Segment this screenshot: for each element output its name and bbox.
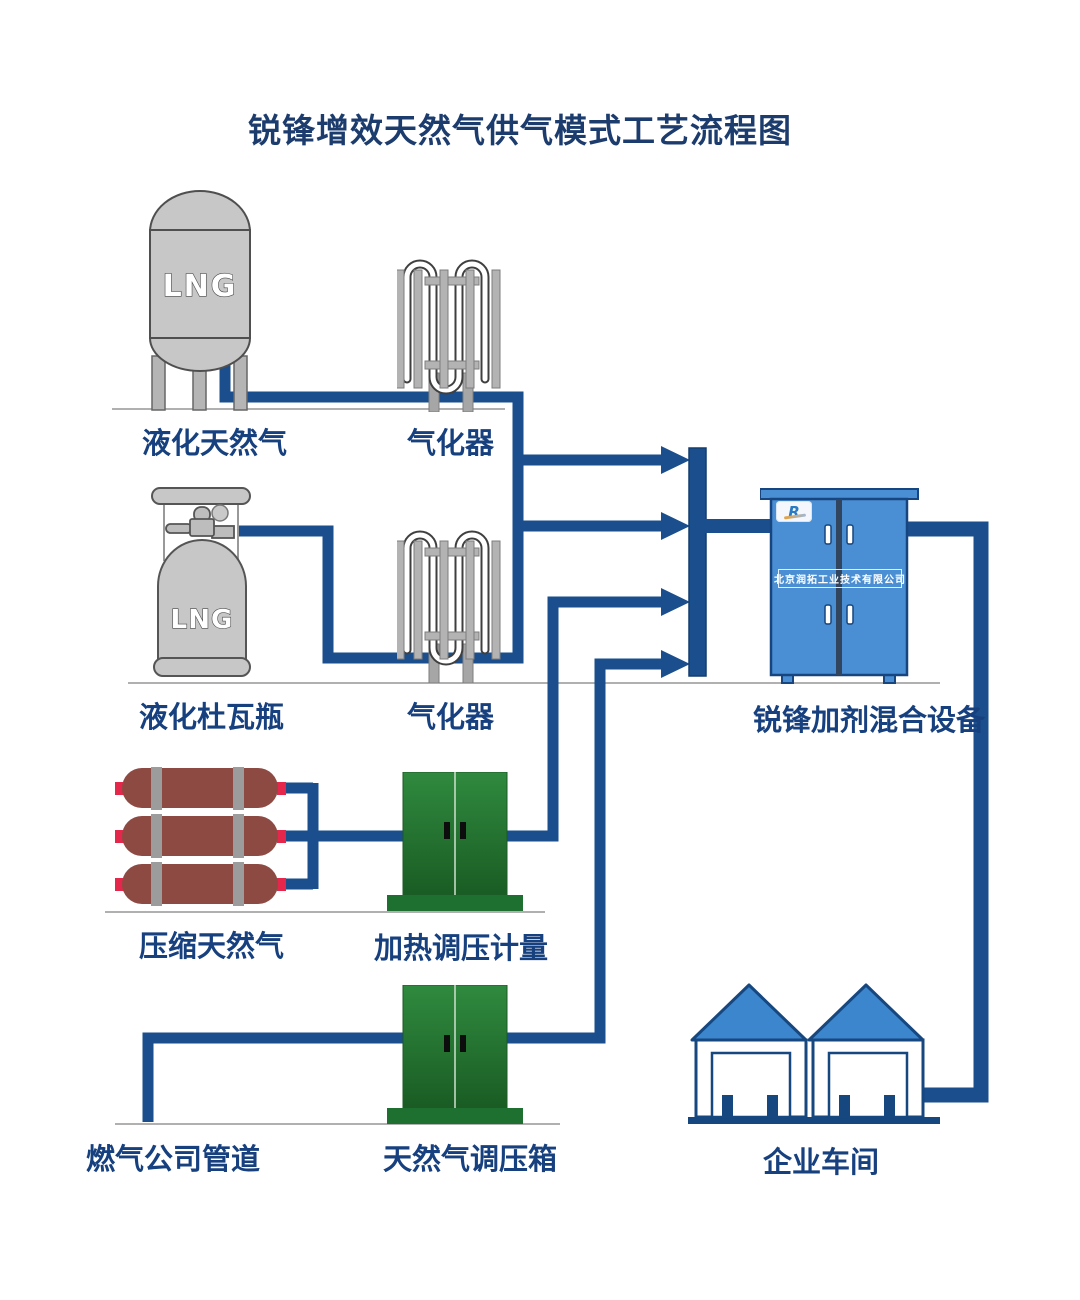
label-vaporizer-top: 气化器 [407, 420, 494, 462]
label-lng-tank: 液化天然气 [142, 420, 287, 462]
regulator-cabinet-base [387, 1108, 523, 1124]
label-regulator: 天然气调压箱 [383, 1136, 557, 1178]
manifold-bar [689, 448, 706, 676]
mixer-logo: R [776, 501, 812, 522]
manifold-arrowheads [661, 446, 690, 678]
heater-cabinet [385, 772, 525, 912]
dewar-gauge [212, 505, 228, 521]
workshop-building-2 [809, 985, 923, 1117]
dewar-rim [152, 488, 250, 504]
dewar-text: LNG [171, 605, 234, 635]
dewar-bottle: LNG [150, 486, 255, 686]
mixer-company-name: 北京润拓工业技术有限公司 [778, 569, 902, 588]
lng-tank-text: LNG [163, 269, 238, 304]
mixer-cap [760, 489, 918, 499]
regulator-cabinet [385, 985, 525, 1125]
dewar-base [154, 658, 250, 676]
label-heater: 加热调压计量 [374, 925, 548, 967]
label-vaporizer-mid: 气化器 [407, 694, 494, 736]
heater-cabinet-base [387, 895, 523, 911]
label-dewar: 液化杜瓦瓶 [139, 694, 284, 736]
workshop-buildings [688, 983, 946, 1129]
dewar-body [158, 540, 246, 664]
lng-tank: LNG [140, 184, 260, 412]
label-cng: 压缩天然气 [139, 923, 284, 965]
cng-cylinders [115, 767, 290, 909]
label-mixer: 锐锋加剂混合设备 [753, 697, 985, 739]
vaporizer-mid [397, 518, 507, 683]
label-pipeline: 燃气公司管道 [86, 1136, 260, 1178]
label-workshop: 企业车间 [763, 1139, 879, 1181]
process-flow-diagram: 锐锋增效天然气供气模式工艺流程图 [0, 0, 1080, 1300]
vaporizer-top [397, 247, 507, 412]
workshop-building-1 [692, 985, 806, 1117]
